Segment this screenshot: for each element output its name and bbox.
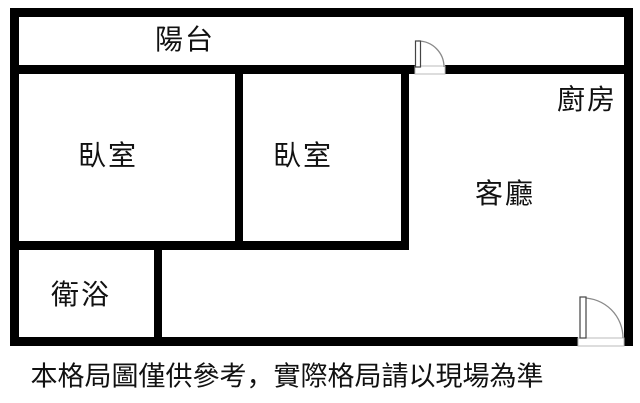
living-label: 客廳 xyxy=(475,180,535,208)
bathroom-right-wall xyxy=(154,250,162,337)
outer-wall-bottom xyxy=(10,337,578,346)
entrance-door-icon xyxy=(578,297,624,346)
bathroom-label: 衛浴 xyxy=(51,281,111,309)
outer-wall-right xyxy=(624,8,633,346)
outer-wall-left xyxy=(10,8,19,346)
outer-wall-top xyxy=(10,8,633,17)
disclaimer-text: 本格局圖僅供參考，實際格局請以現場為準 xyxy=(31,364,544,391)
mid-horizontal-wall xyxy=(19,241,409,250)
bedroom-divider-wall xyxy=(235,74,243,250)
bedroom1-label: 臥室 xyxy=(78,142,138,170)
living-divider-wall xyxy=(401,74,409,250)
balcony-label: 陽台 xyxy=(155,26,215,54)
bedroom2-label: 臥室 xyxy=(273,142,333,170)
balcony-door-icon xyxy=(415,41,445,74)
balcony-wall-right-segment xyxy=(445,65,624,74)
floorplan-diagram: 陽台 臥室 臥室 廚房 客廳 衛浴 本格局圖僅供參考，實際格局請以現場為準 xyxy=(0,0,640,403)
kitchen-label: 廚房 xyxy=(557,86,617,114)
balcony-wall-left-segment xyxy=(19,65,415,74)
